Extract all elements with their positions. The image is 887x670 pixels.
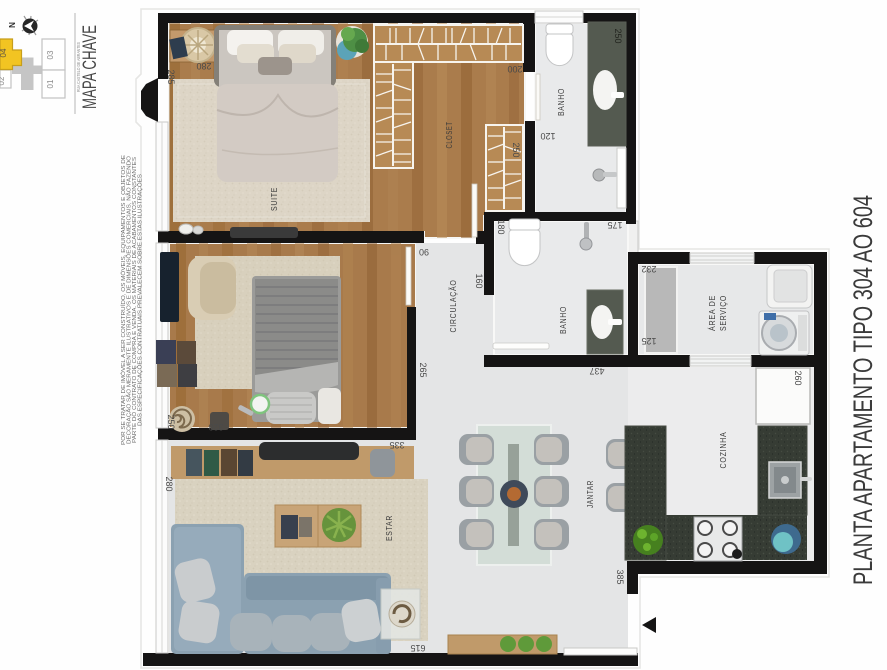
svg-text:DAS ESPECIFICAÇÕES CONTRATUAIS: DAS ESPECIFICAÇÕES CONTRATUAIS PREVALECE… (137, 173, 144, 426)
svg-text:03: 03 (46, 50, 55, 59)
svg-text:335: 335 (389, 440, 404, 450)
svg-text:PLANTA APARTAMENTO TIPO 304 AO: PLANTA APARTAMENTO TIPO 304 AO 604 (848, 195, 878, 585)
svg-text:385: 385 (615, 569, 625, 584)
svg-text:250: 250 (511, 142, 521, 157)
svg-text:250: 250 (166, 414, 176, 429)
svg-text:SUITE: SUITE (270, 187, 279, 211)
svg-text:320: 320 (208, 422, 223, 432)
svg-text:615: 615 (410, 643, 425, 653)
svg-text:ESTAR: ESTAR (385, 515, 394, 541)
svg-text:CIRCULAÇÃO: CIRCULAÇÃO (449, 280, 458, 333)
svg-text:280: 280 (164, 476, 174, 491)
svg-text:285: 285 (166, 69, 176, 84)
svg-text:120: 120 (540, 131, 555, 141)
svg-text:04: 04 (0, 48, 8, 57)
svg-text:437: 437 (589, 366, 604, 376)
svg-text:90: 90 (419, 247, 429, 257)
svg-text:01: 01 (46, 79, 55, 88)
svg-text:N: N (8, 22, 17, 28)
svg-text:COZINHA: COZINHA (719, 432, 728, 469)
svg-text:JANTAR: JANTAR (586, 480, 595, 508)
svg-text:BANHO: BANHO (559, 306, 568, 334)
svg-text:260: 260 (793, 370, 803, 385)
svg-text:CLOSET: CLOSET (445, 122, 454, 149)
svg-text:232: 232 (641, 264, 656, 274)
svg-text:SERVIÇO: SERVIÇO (719, 295, 728, 331)
svg-text:180: 180 (496, 219, 506, 234)
svg-text:280: 280 (196, 61, 211, 71)
svg-text:250: 250 (613, 28, 623, 43)
svg-text:200: 200 (507, 64, 522, 74)
svg-text:125: 125 (641, 336, 656, 346)
svg-text:ÁREA DE: ÁREA DE (708, 295, 717, 331)
svg-text:BANHO: BANHO (557, 88, 566, 116)
svg-text:175: 175 (607, 220, 622, 230)
svg-text:02: 02 (0, 76, 6, 85)
svg-text:160: 160 (474, 273, 484, 288)
svg-text:MAPA CHAVE: MAPA CHAVE (80, 25, 101, 109)
svg-text:265: 265 (418, 362, 428, 377)
